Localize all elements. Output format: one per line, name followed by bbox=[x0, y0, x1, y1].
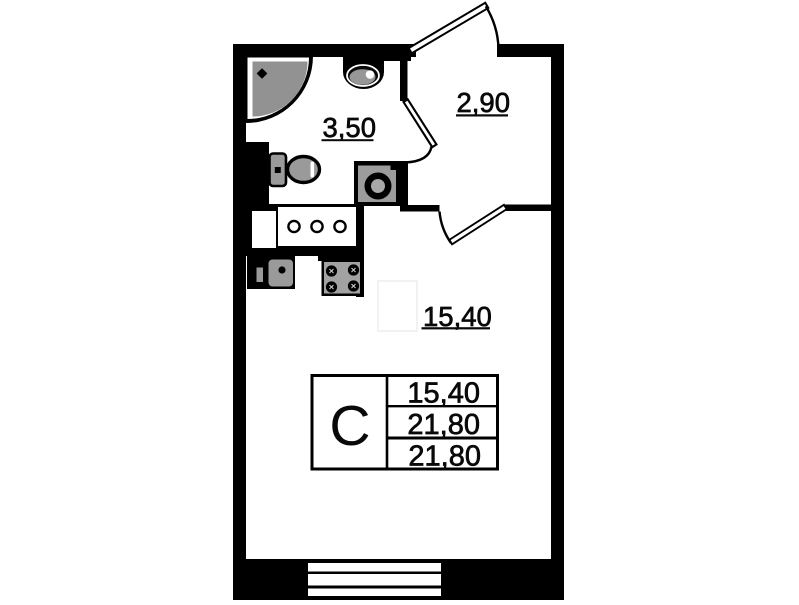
svg-text:3,50: 3,50 bbox=[323, 112, 377, 143]
svg-text:21,80: 21,80 bbox=[408, 441, 481, 473]
svg-text:15,40: 15,40 bbox=[423, 301, 492, 332]
svg-text:2,90: 2,90 bbox=[457, 87, 511, 118]
svg-text:15,40: 15,40 bbox=[407, 378, 480, 410]
svg-text:C: C bbox=[329, 394, 370, 458]
svg-text:21,80: 21,80 bbox=[407, 409, 480, 441]
